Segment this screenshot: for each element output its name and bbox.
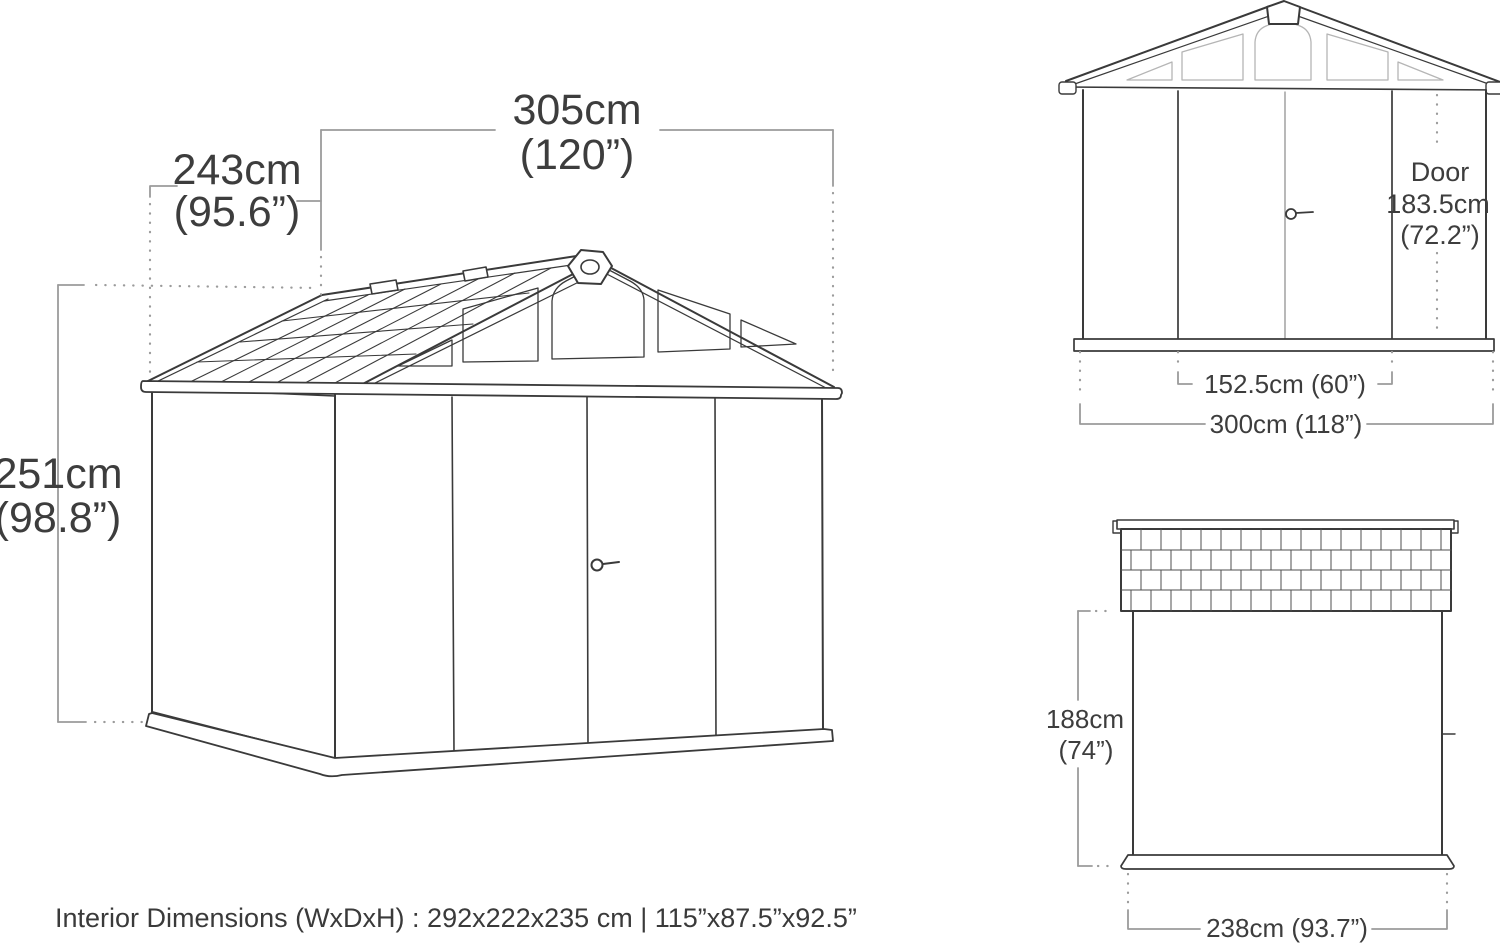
dim-label-side-height-cm: 188cm <box>1046 706 1124 733</box>
side-view-drawing <box>1113 520 1458 869</box>
front-window-trapezoid-left <box>1182 34 1243 80</box>
side-walls <box>1133 611 1455 855</box>
diagram-lineart <box>0 0 1500 947</box>
dim-label-side-height-in: (74”) <box>1059 737 1114 764</box>
shed-dimension-diagram: 305cm (120”) 243cm (95.6”) 251cm (98.8”)… <box>0 0 1500 947</box>
front-door-handle-icon <box>1286 209 1313 219</box>
door-seam-left <box>452 397 454 753</box>
roof-finial <box>568 250 612 284</box>
perspective-view-drawing <box>141 250 842 776</box>
door-seam-right <box>715 397 716 743</box>
door-handle-icon <box>592 560 620 571</box>
front-base-bar <box>1074 339 1494 351</box>
front-window-trapezoid-right <box>1327 34 1388 80</box>
ridge-tab <box>370 280 398 294</box>
perspective-base-rail <box>146 713 833 776</box>
dim-label-width-in: (120”) <box>520 133 635 178</box>
eave-fascia-band <box>141 381 842 399</box>
dim-label-depth-in: (95.6”) <box>174 190 301 235</box>
eave-end-cap-left <box>1059 82 1076 94</box>
dim-label-height-in: (98.8”) <box>0 496 121 541</box>
side-roof-shingle-band <box>1121 529 1451 611</box>
perspective-walls <box>152 385 824 759</box>
dim-label-front-width: 300cm (118”) <box>1210 411 1363 438</box>
door-label-title: Door <box>1411 158 1470 186</box>
front-roof-finial <box>1267 1 1300 24</box>
gable-window-triangle-right <box>741 320 796 347</box>
interior-dimensions-text: Interior Dimensions (WxDxH) : 292x222x23… <box>55 905 857 932</box>
door-label-height-in: (72.2”) <box>1400 221 1480 249</box>
dim-label-side-depth: 238cm (93.7”) <box>1206 915 1368 942</box>
dim-label-width-cm: 305cm <box>512 88 641 133</box>
side-base-trim <box>1121 855 1454 869</box>
shingle-rows <box>197 293 529 362</box>
dim-label-depth-cm: 243cm <box>172 148 301 193</box>
dim-label-door-width: 152.5cm (60”) <box>1204 371 1366 398</box>
eave-end-cap-right <box>1486 82 1500 94</box>
gable-window-triangle-left <box>398 340 452 366</box>
ridge-tab <box>463 267 488 281</box>
roof-left-slope <box>146 255 585 384</box>
dim-label-height-cm: 251cm <box>0 452 123 497</box>
door-label-height-cm: 183.5cm <box>1386 190 1490 218</box>
front-window-arch-center <box>1255 23 1311 81</box>
door-split-line <box>587 396 588 749</box>
front-window-triangle-right <box>1398 62 1443 80</box>
front-window-triangle-left <box>1127 62 1172 80</box>
